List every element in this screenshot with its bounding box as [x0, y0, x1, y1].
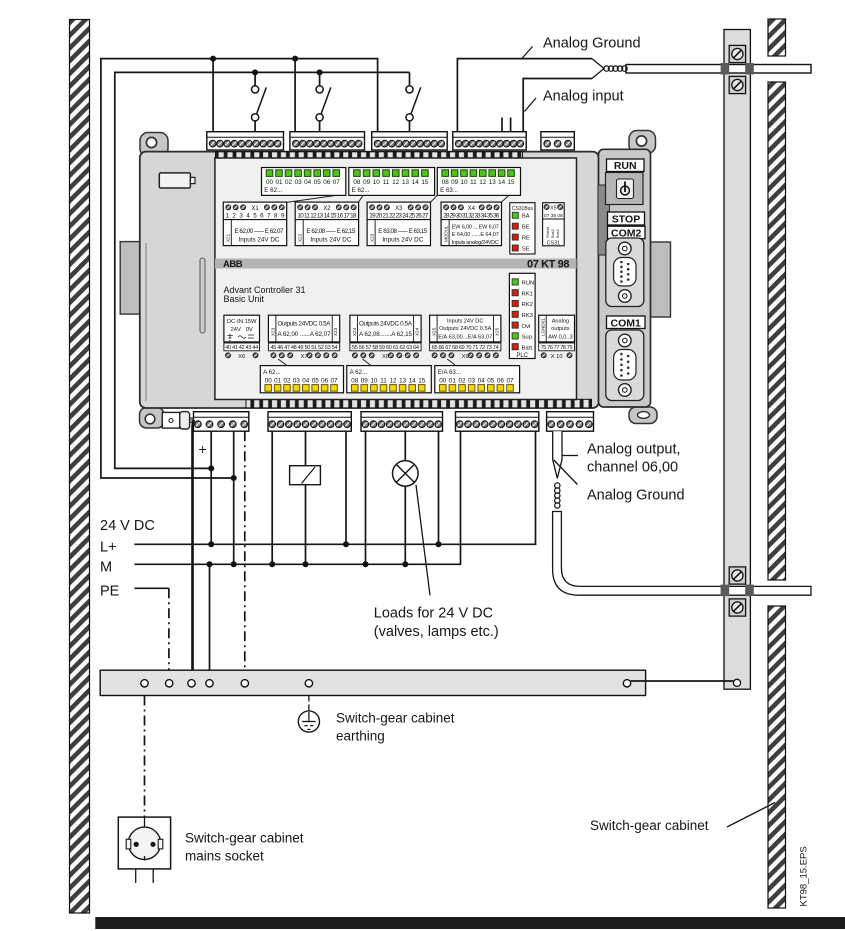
- svg-text:Analog output,: Analog output,: [587, 442, 681, 458]
- svg-text:Analog input: Analog input: [543, 89, 624, 105]
- svg-text:Basic Unit: Basic Unit: [224, 294, 265, 304]
- svg-text:X25: X25: [494, 327, 499, 336]
- svg-text:CS31: CS31: [547, 241, 561, 247]
- svg-text:Analog Ground: Analog Ground: [587, 488, 685, 504]
- svg-text:07 38 08: 07 38 08: [544, 213, 563, 219]
- svg-text:07 KT 98: 07 KT 98: [527, 259, 570, 271]
- svg-text:07: 07: [333, 179, 341, 186]
- svg-text:Batt.: Batt.: [522, 345, 534, 351]
- svg-text:06: 06: [323, 179, 331, 186]
- svg-text:19 20 21 22 23 24 25 26 27: 19 20 21 22 23 24 25 26 27: [369, 212, 428, 219]
- svg-text:01: 01: [274, 377, 282, 384]
- svg-text:07: 07: [506, 377, 514, 384]
- svg-text:X5: X5: [550, 206, 557, 212]
- svg-text:RUN: RUN: [522, 281, 535, 287]
- svg-text:11: 11: [470, 179, 477, 186]
- svg-text:A 62,08.......A 62,15: A 62,08.......A 62,15: [359, 331, 412, 338]
- svg-text:A 62...: A 62...: [263, 369, 281, 376]
- svg-text:45 46 47 48 49 50 51 52 53 54: 45 46 47 48 49 50 51 52 53 54: [271, 345, 338, 351]
- svg-text:X1: X1: [251, 206, 259, 212]
- svg-text:RK1: RK1: [522, 291, 533, 297]
- svg-text:E 62,00 ------ E 62,07: E 62,00 ------ E 62,07: [235, 228, 284, 235]
- svg-text:15: 15: [421, 179, 429, 186]
- svg-text:L+: L+: [100, 540, 117, 556]
- svg-text:05: 05: [487, 377, 495, 384]
- svg-text:mains socket: mains socket: [185, 849, 264, 864]
- svg-text:12: 12: [392, 179, 400, 186]
- svg-text:15: 15: [418, 377, 426, 384]
- svg-text:+: +: [199, 441, 207, 457]
- svg-text:SE: SE: [522, 246, 530, 252]
- svg-text:channel 06,00: channel 06,00: [587, 460, 678, 476]
- svg-text:MODUL: MODUL: [444, 225, 449, 242]
- svg-text:01: 01: [449, 377, 457, 384]
- svg-text:Switch-gear cabinet: Switch-gear cabinet: [185, 831, 304, 846]
- svg-text:13: 13: [399, 377, 407, 384]
- svg-text:Inputs 24V DC: Inputs 24V DC: [382, 237, 423, 244]
- svg-text:Loads for 24 V DC: Loads for 24 V DC: [374, 606, 493, 622]
- svg-text:Inputs 24V DC: Inputs 24V DC: [447, 319, 483, 325]
- svg-text:Bus1: Bus1: [555, 229, 560, 238]
- svg-text:Analog Ground: Analog Ground: [543, 36, 641, 52]
- svg-text:X23: X23: [333, 327, 338, 336]
- svg-text:X23: X23: [270, 327, 275, 336]
- svg-text:11: 11: [380, 377, 387, 384]
- svg-text:E 62,08 ------ E 62,15: E 62,08 ------ E 62,15: [306, 228, 355, 235]
- svg-text:15: 15: [507, 179, 515, 186]
- svg-text:03: 03: [295, 179, 303, 186]
- svg-text:10: 10: [373, 179, 381, 186]
- svg-text:00: 00: [439, 377, 447, 384]
- svg-text:02: 02: [458, 377, 466, 384]
- svg-text:04: 04: [478, 377, 486, 384]
- svg-text:AW 0,0..3: AW 0,0..3: [548, 335, 572, 341]
- svg-text:outputs: outputs: [551, 326, 570, 332]
- svg-text:PE: PE: [100, 584, 120, 600]
- svg-text:Inputs 24V DC: Inputs 24V DC: [239, 237, 280, 244]
- svg-text:02: 02: [283, 377, 291, 384]
- svg-text:1 2 3 4 5 6 7 8 9: 1 2 3 4 5 6 7 8 9: [226, 212, 285, 219]
- svg-text:X3: X3: [395, 206, 403, 212]
- svg-text:03: 03: [468, 377, 476, 384]
- svg-text:M: M: [100, 560, 112, 576]
- svg-text:X4: X4: [468, 206, 476, 212]
- svg-text:08: 08: [351, 377, 359, 384]
- svg-text:10 11 12 13 14 15 16 17 18: 10 11 12 13 14 15 16 17 18: [297, 212, 356, 219]
- svg-text:14: 14: [412, 179, 420, 186]
- svg-text:08: 08: [442, 179, 450, 186]
- svg-text:Ovl: Ovl: [522, 324, 531, 330]
- svg-text:09: 09: [361, 377, 369, 384]
- svg-text:X23: X23: [370, 233, 375, 242]
- svg-text:RK2: RK2: [522, 302, 533, 308]
- svg-text:Inputs analog/24VDC: Inputs analog/24VDC: [452, 240, 499, 246]
- svg-text:75 76 77 78 79: 75 76 77 78 79: [541, 345, 573, 351]
- svg-text:Outputs 24VDC 0.5A: Outputs 24VDC 0.5A: [439, 326, 492, 332]
- svg-text:13: 13: [402, 179, 410, 186]
- svg-text:09: 09: [363, 179, 371, 186]
- svg-text:X6: X6: [238, 354, 245, 360]
- svg-text:24V 0V: 24V 0V: [231, 327, 253, 333]
- svg-text:02: 02: [285, 179, 293, 186]
- svg-text:00: 00: [265, 377, 273, 384]
- svg-text:LGND01: LGND01: [541, 318, 546, 336]
- svg-text:10: 10: [370, 377, 378, 384]
- svg-text:05: 05: [314, 179, 322, 186]
- svg-text:55 56 57 58 59 60 61 62 63 64: 55 56 57 58 59 60 61 62 63 64: [352, 345, 419, 351]
- svg-text:01: 01: [275, 179, 283, 186]
- svg-text:X2: X2: [323, 206, 331, 212]
- svg-text:X22: X22: [298, 233, 303, 242]
- svg-text:06: 06: [321, 377, 329, 384]
- svg-text:65 66 67 68 69 70 71 72 73 74: 65 66 67 68 69 70 71 72 73 74: [432, 345, 499, 351]
- svg-text:X9: X9: [462, 354, 469, 360]
- svg-text:Outputs 24VDC 0.5A: Outputs 24VDC 0.5A: [278, 320, 332, 327]
- svg-text:RK3: RK3: [522, 313, 534, 319]
- svg-text:13: 13: [489, 179, 497, 186]
- svg-text:04: 04: [302, 377, 310, 384]
- svg-text:08: 08: [353, 179, 361, 186]
- svg-text:A 62,00 ......A 62,07: A 62,00 ......A 62,07: [278, 331, 331, 338]
- svg-text:STOP: STOP: [612, 214, 640, 226]
- svg-text:EW 6,00 ... EW 6,07: EW 6,00 ... EW 6,07: [452, 225, 499, 231]
- svg-text:05: 05: [312, 377, 320, 384]
- svg-text:(valves, lamps etc.): (valves, lamps etc.): [374, 624, 499, 640]
- svg-text:DC-IN 15W: DC-IN 15W: [227, 319, 257, 325]
- svg-text:X 10: X 10: [551, 354, 563, 360]
- svg-text:Inputs 24V DC: Inputs 24V DC: [310, 237, 351, 244]
- svg-text:11: 11: [383, 179, 390, 186]
- svg-text:E 62...: E 62...: [264, 187, 282, 194]
- svg-text:E 64,00 ......E 64,07: E 64,00 ......E 64,07: [452, 232, 499, 238]
- svg-text:Switch-gear cabinet: Switch-gear cabinet: [336, 711, 455, 726]
- svg-text:14: 14: [409, 377, 417, 384]
- svg-text:CS31Bus: CS31Bus: [512, 206, 534, 212]
- svg-text:earthing: earthing: [336, 729, 385, 744]
- svg-text:X25: X25: [432, 327, 437, 336]
- svg-text:E/A 63,00...E/A 63,07: E/A 63,00...E/A 63,07: [438, 335, 492, 341]
- svg-text:00: 00: [266, 179, 274, 186]
- svg-text:E/A 63...: E/A 63...: [438, 369, 462, 376]
- svg-text:COM1: COM1: [611, 317, 641, 329]
- svg-text:BE: BE: [522, 225, 530, 231]
- svg-text:Sup.: Sup.: [522, 335, 534, 341]
- svg-text:RUN: RUN: [614, 160, 637, 172]
- svg-text:A 62...: A 62...: [350, 369, 368, 376]
- svg-text:09: 09: [451, 179, 459, 186]
- svg-text:X24: X24: [352, 327, 357, 336]
- svg-text:28 29 30 31 32 33 34 35 36: 28 29 30 31 32 33 34 35 36: [443, 212, 499, 219]
- svg-text:12: 12: [389, 377, 397, 384]
- svg-text:07: 07: [330, 377, 338, 384]
- svg-text:ABB: ABB: [223, 259, 243, 270]
- svg-text:12: 12: [479, 179, 487, 186]
- svg-text:X8: X8: [382, 354, 389, 360]
- svg-text:E 63,08 ------ E 63,15: E 63,08 ------ E 63,15: [378, 228, 427, 235]
- svg-text:KT98_15.EPS: KT98_15.EPS: [799, 846, 810, 906]
- svg-text:40 41 42 43 44: 40 41 42 43 44: [225, 345, 258, 351]
- svg-text:BA: BA: [522, 214, 530, 220]
- svg-text:E 62...: E 62...: [352, 187, 370, 194]
- svg-text:Switch-gear cabinet: Switch-gear cabinet: [590, 818, 709, 833]
- svg-text:06: 06: [497, 377, 505, 384]
- svg-text:X21: X21: [226, 233, 231, 242]
- svg-text:E 63...: E 63...: [440, 187, 458, 194]
- svg-text:X24: X24: [415, 327, 420, 336]
- svg-text:24 V DC: 24 V DC: [100, 518, 155, 534]
- svg-text:PLC: PLC: [516, 353, 528, 359]
- svg-text:10: 10: [460, 179, 468, 186]
- svg-text:04: 04: [304, 179, 312, 186]
- svg-text:14: 14: [498, 179, 506, 186]
- svg-text:Analog: Analog: [552, 319, 569, 325]
- svg-text:03: 03: [293, 377, 301, 384]
- svg-text:RE: RE: [522, 236, 530, 242]
- svg-text:Outputs 24VDC 0.5A: Outputs 24VDC 0.5A: [359, 320, 413, 327]
- svg-text:X7: X7: [300, 354, 307, 360]
